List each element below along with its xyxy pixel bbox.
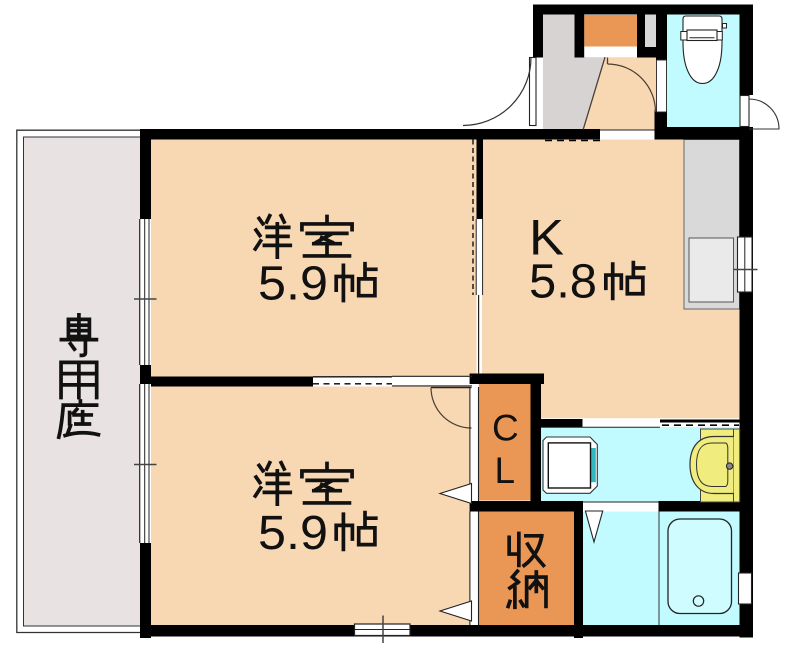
- svg-text:5.9: 5.9: [258, 507, 328, 560]
- svg-text:5.9: 5.9: [258, 258, 328, 311]
- svg-text:C: C: [492, 408, 519, 449]
- svg-text:L: L: [495, 450, 516, 491]
- svg-text:5.8: 5.8: [529, 256, 597, 309]
